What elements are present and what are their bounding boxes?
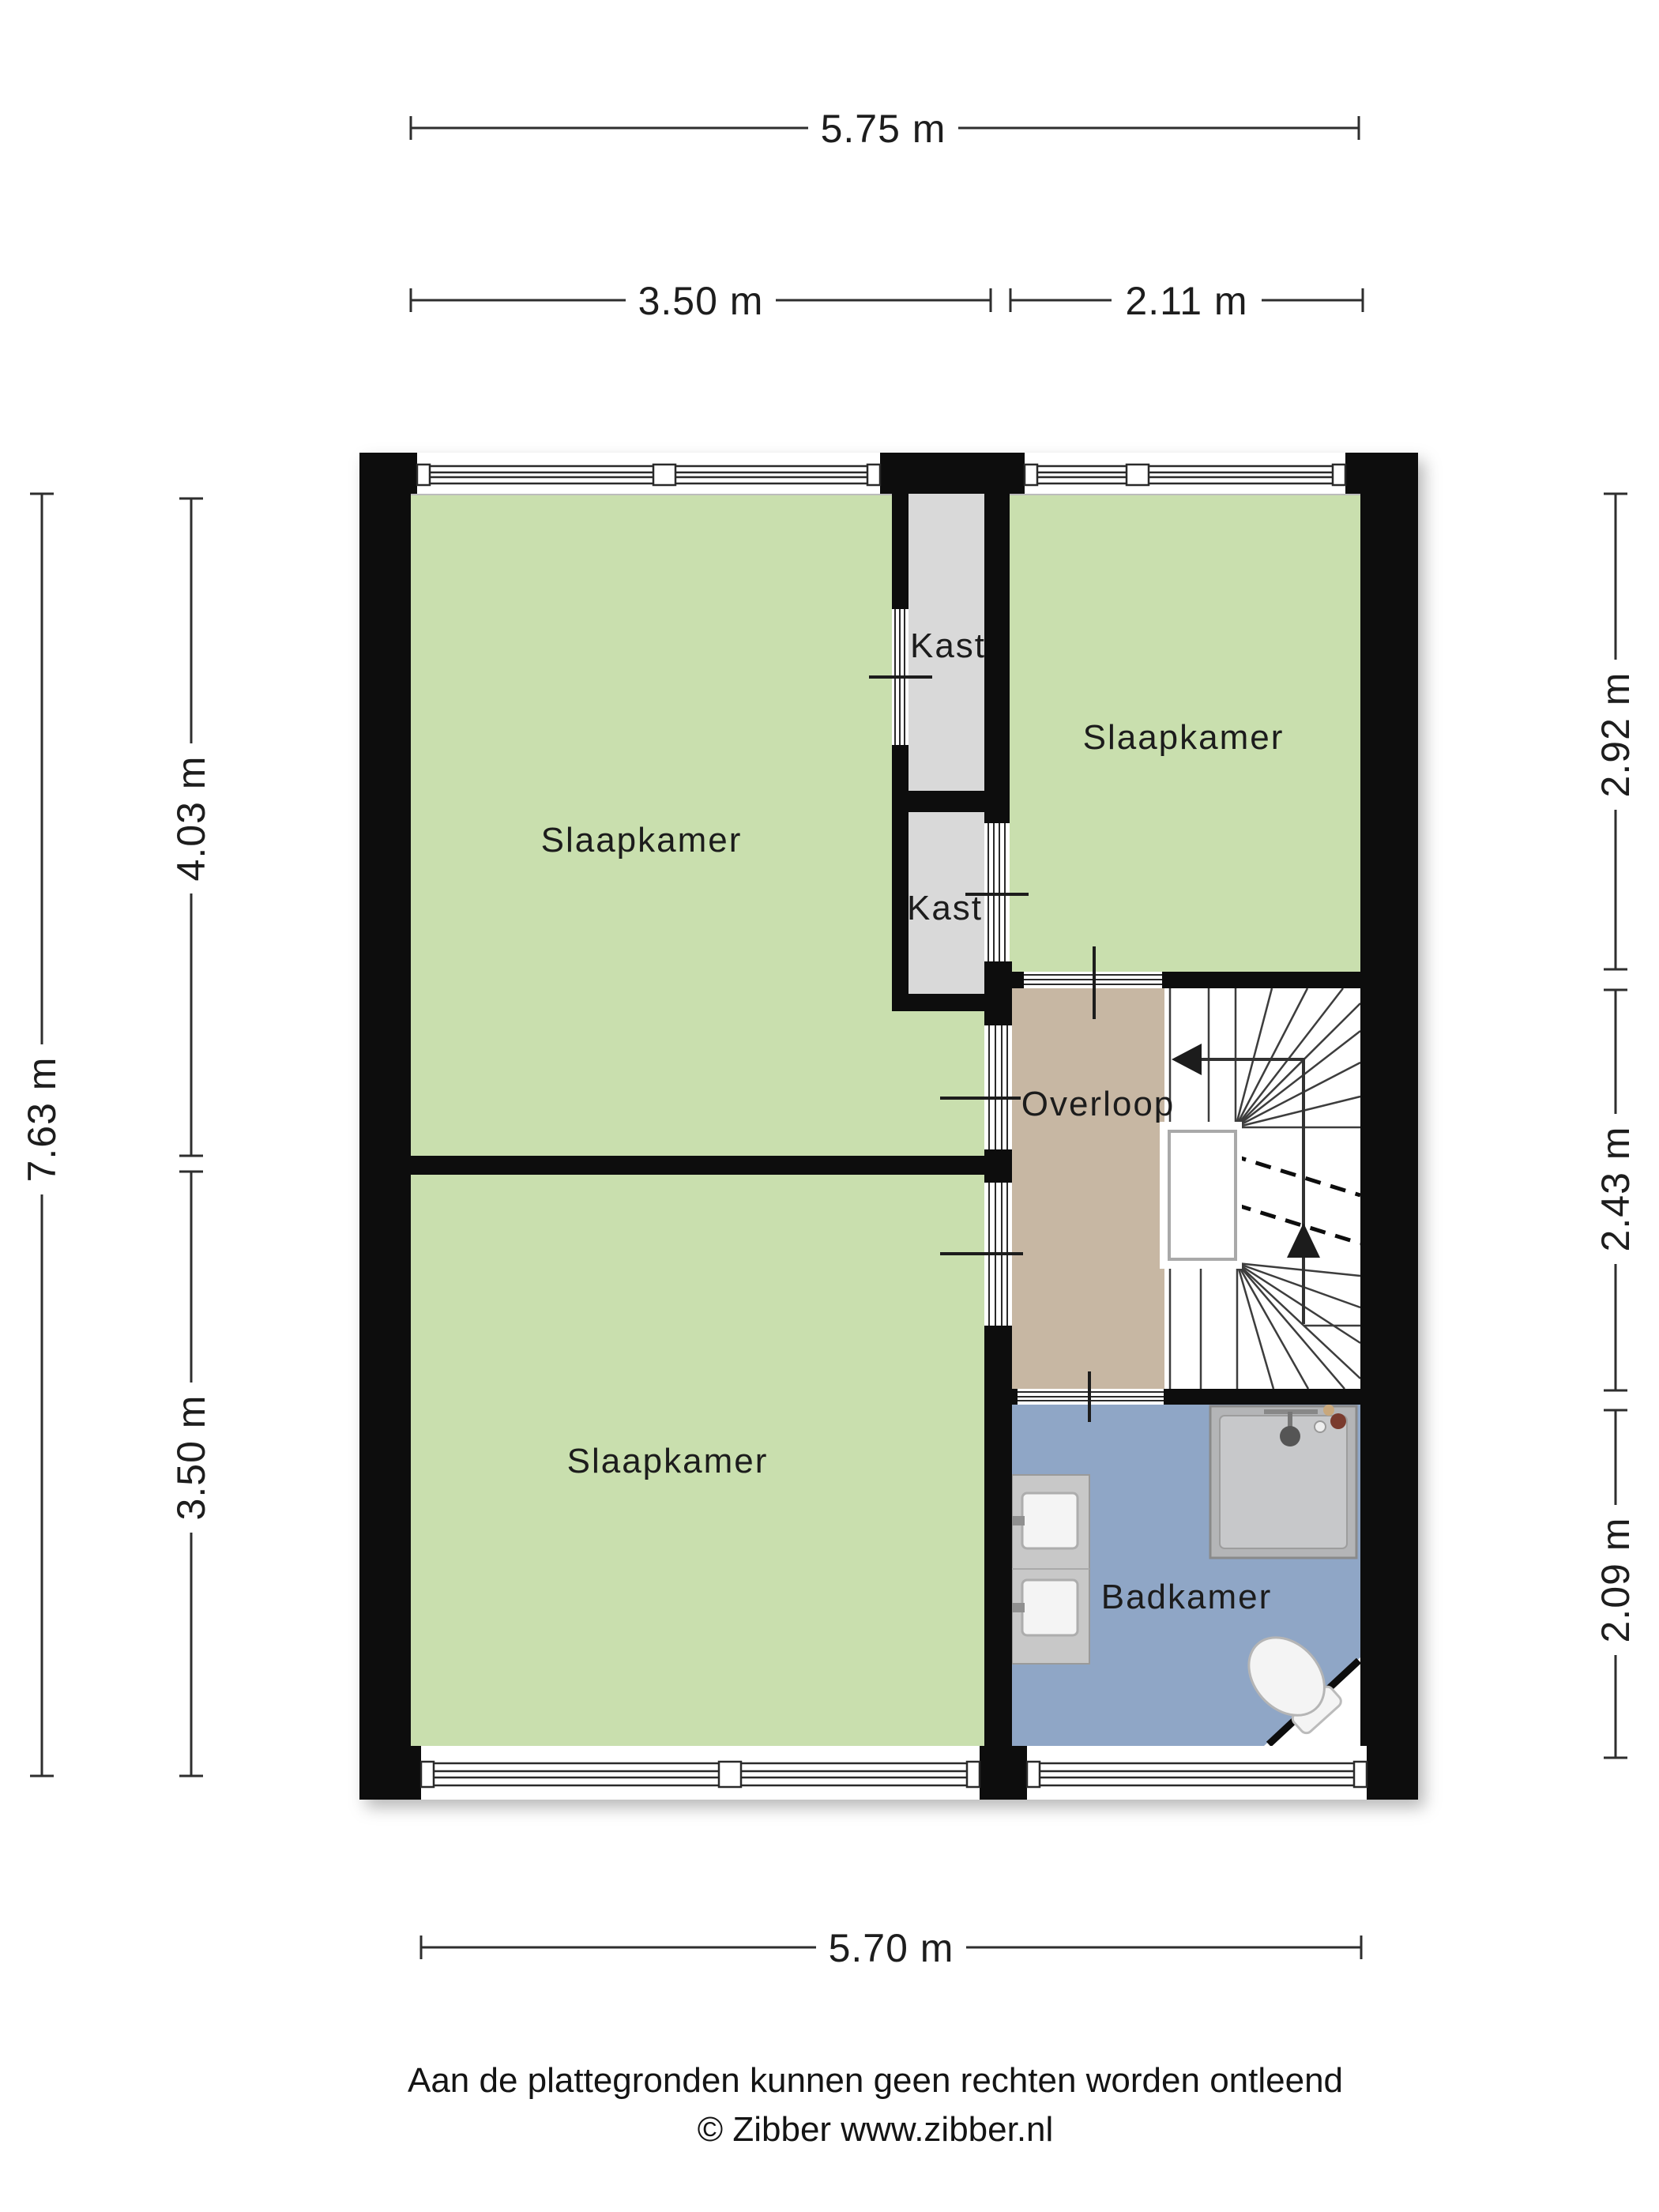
label-landing: Overloop [1021, 1085, 1176, 1123]
dimension-left-total: 7.63 m [20, 494, 64, 1776]
dimension-label-right-lower: 2.09 m [1593, 1518, 1638, 1643]
wall-closet-bottom [892, 994, 1010, 1011]
label-bedroom-top-right: Slaapkamer [1083, 718, 1285, 757]
floorplan: Slaapkamer Slaapkamer Slaapkamer Kast Ka… [359, 453, 1418, 1800]
dimension-right-upper: 2.92 m [1593, 494, 1638, 969]
dimension-right-middle: 2.43 m [1593, 990, 1638, 1390]
dimension-right-lower: 2.09 m [1593, 1410, 1638, 1758]
window-top-left-icon [417, 453, 880, 494]
dimension-top-right: 2.11 m [1010, 279, 1363, 323]
footer-copyright: © Zibber www.zibber.nl [698, 2110, 1054, 2149]
footer: Aan de plattegronden kunnen geen rechten… [408, 2061, 1343, 2149]
footer-disclaimer: Aan de plattegronden kunnen geen rechten… [408, 2061, 1343, 2100]
wall-bathroom-top-b [1164, 1389, 1360, 1405]
dimension-label-top-total: 5.75 m [821, 107, 946, 151]
room-landing [1012, 988, 1164, 1389]
window-top-right-icon [1025, 453, 1345, 494]
dimension-left-lower: 3.50 m [169, 1172, 213, 1776]
wall-bedroom-divider [411, 1156, 984, 1175]
wall-top-middle [880, 453, 1025, 494]
wall-closet-right-a [984, 494, 1010, 823]
wall-top-corner-left [359, 453, 417, 494]
wall-closet-left-a [892, 494, 908, 609]
label-closet-bottom: Kast [907, 889, 983, 927]
wall-landing-left-c [984, 1326, 1012, 1746]
wall-right [1360, 453, 1418, 1800]
dimension-label-right-upper: 2.92 m [1593, 672, 1638, 798]
dimension-bottom-total: 5.70 m [421, 1926, 1361, 1970]
shower-icon [1210, 1405, 1356, 1558]
dimension-label-left-lower: 3.50 m [169, 1395, 213, 1521]
label-bedroom-top-left: Slaapkamer [541, 821, 743, 860]
window-bottom-left-icon [421, 1746, 980, 1800]
window-bathroom-icon [1027, 1746, 1367, 1800]
dimension-label-left-total: 7.63 m [20, 1057, 64, 1183]
dimension-label-top-left: 3.50 m [638, 279, 764, 323]
wall-landing-left-b [984, 1149, 1012, 1183]
dimension-top-total: 5.75 m [411, 107, 1359, 151]
dimension-left-upper: 4.03 m [169, 498, 213, 1156]
wall-top-corner-right [1345, 453, 1418, 494]
label-bathroom: Badkamer [1101, 1578, 1273, 1616]
stair-void [1169, 1131, 1236, 1259]
wall-left [359, 453, 411, 1800]
dimension-label-right-middle: 2.43 m [1593, 1127, 1638, 1252]
wall-bottom-corner-left [359, 1746, 421, 1800]
label-closet-top: Kast [910, 626, 986, 665]
label-bedroom-bottom: Slaapkamer [567, 1442, 769, 1480]
room-bedroom-top-left-extension [892, 1011, 984, 1156]
wall-bathroom-top-a [984, 1389, 1018, 1405]
floorplan-page: 5.75 m 3.50 m 2.11 m 5.70 m 7.63 m 4.03 … [0, 0, 1659, 2212]
wall-landing-top-b [1162, 972, 1360, 988]
wall-closet-right-b [984, 961, 1012, 972]
wall-bottom-corner-right [1367, 1746, 1418, 1800]
dimension-top-left: 3.50 m [411, 279, 991, 323]
dimension-label-top-right: 2.11 m [1125, 279, 1247, 323]
double-sink-icon [1012, 1475, 1089, 1664]
dimension-label-bottom-total: 5.70 m [829, 1926, 954, 1970]
dimension-label-left-upper: 4.03 m [169, 756, 213, 882]
wall-bottom-middle [980, 1746, 1027, 1800]
wall-landing-top-a [1012, 972, 1024, 988]
wall-closet-left-b [892, 745, 908, 1011]
